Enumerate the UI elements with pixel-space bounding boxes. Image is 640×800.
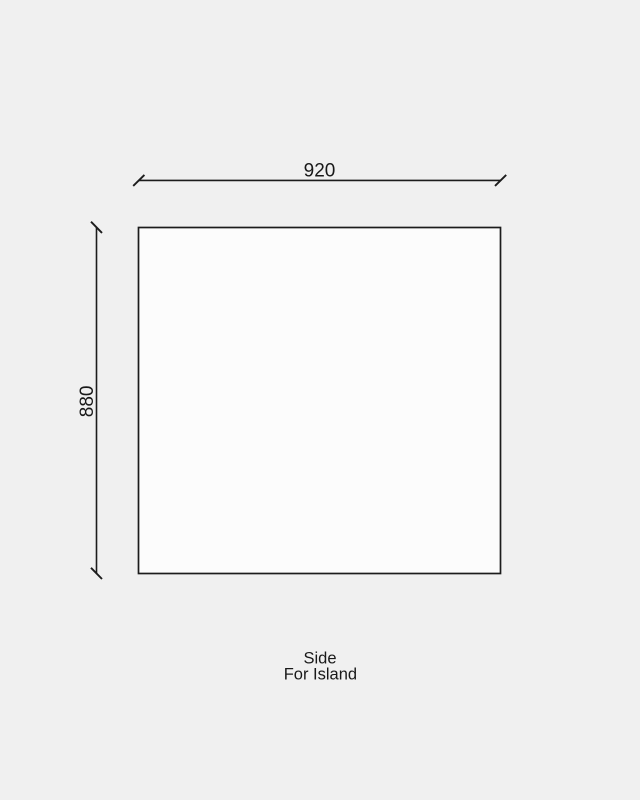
- svg-text:920: 920: [304, 161, 336, 182]
- svg-text:For Island: For Island: [284, 666, 357, 684]
- svg-text:880: 880: [77, 386, 98, 418]
